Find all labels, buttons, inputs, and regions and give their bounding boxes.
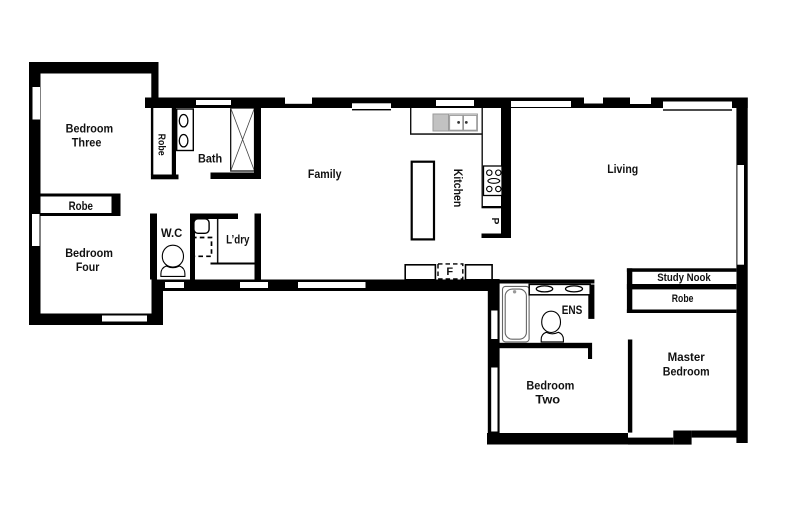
svg-text:Living: Living (607, 163, 638, 176)
svg-text:ENS: ENS (562, 304, 583, 317)
svg-text:W.C: W.C (161, 227, 183, 240)
svg-text:Four: Four (76, 261, 100, 274)
svg-text:Bedroom: Bedroom (526, 380, 574, 393)
svg-text:Robe: Robe (155, 134, 167, 156)
svg-text:Bedroom: Bedroom (663, 366, 710, 379)
svg-text:L’dry: L’dry (226, 234, 250, 247)
svg-text:Study Nook: Study Nook (657, 272, 711, 284)
svg-text:Master: Master (668, 351, 706, 364)
svg-text:Three: Three (72, 137, 102, 150)
svg-text:Bath: Bath (198, 153, 222, 166)
svg-text:F: F (446, 266, 453, 278)
svg-text:Robe: Robe (69, 200, 94, 213)
svg-text:Family: Family (308, 168, 342, 181)
svg-text:Kitchen: Kitchen (451, 169, 464, 208)
svg-text:Two: Two (535, 394, 560, 407)
svg-text:Bedroom: Bedroom (65, 247, 113, 260)
svg-text:P: P (489, 218, 500, 225)
svg-text:Robe: Robe (672, 293, 694, 305)
svg-text:Bedroom: Bedroom (66, 123, 114, 136)
